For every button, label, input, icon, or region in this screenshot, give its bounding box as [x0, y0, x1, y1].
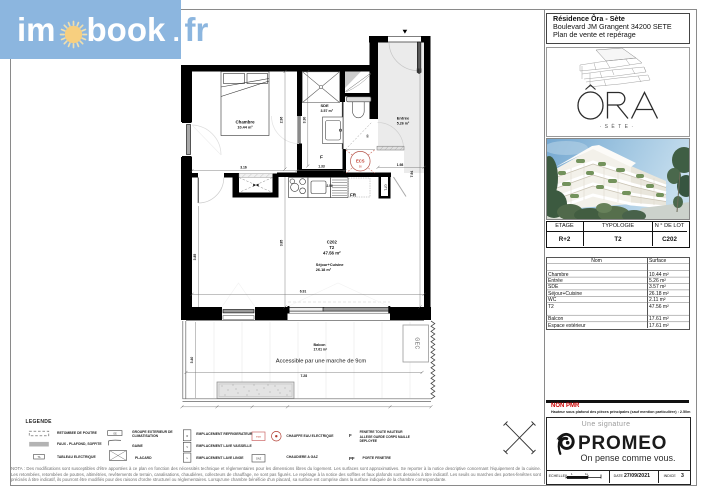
svg-text:TA: TA: [38, 456, 41, 459]
svg-text:GE: GE: [113, 432, 117, 435]
svg-text:R: R: [186, 434, 188, 438]
svg-text:ecs: ecs: [256, 435, 261, 439]
svg-text:V: V: [186, 445, 188, 449]
svg-text:1: 1: [571, 472, 573, 476]
svg-text:GAZ: GAZ: [256, 457, 262, 461]
svg-text:·SÈTE·: ·SÈTE·: [599, 123, 636, 130]
